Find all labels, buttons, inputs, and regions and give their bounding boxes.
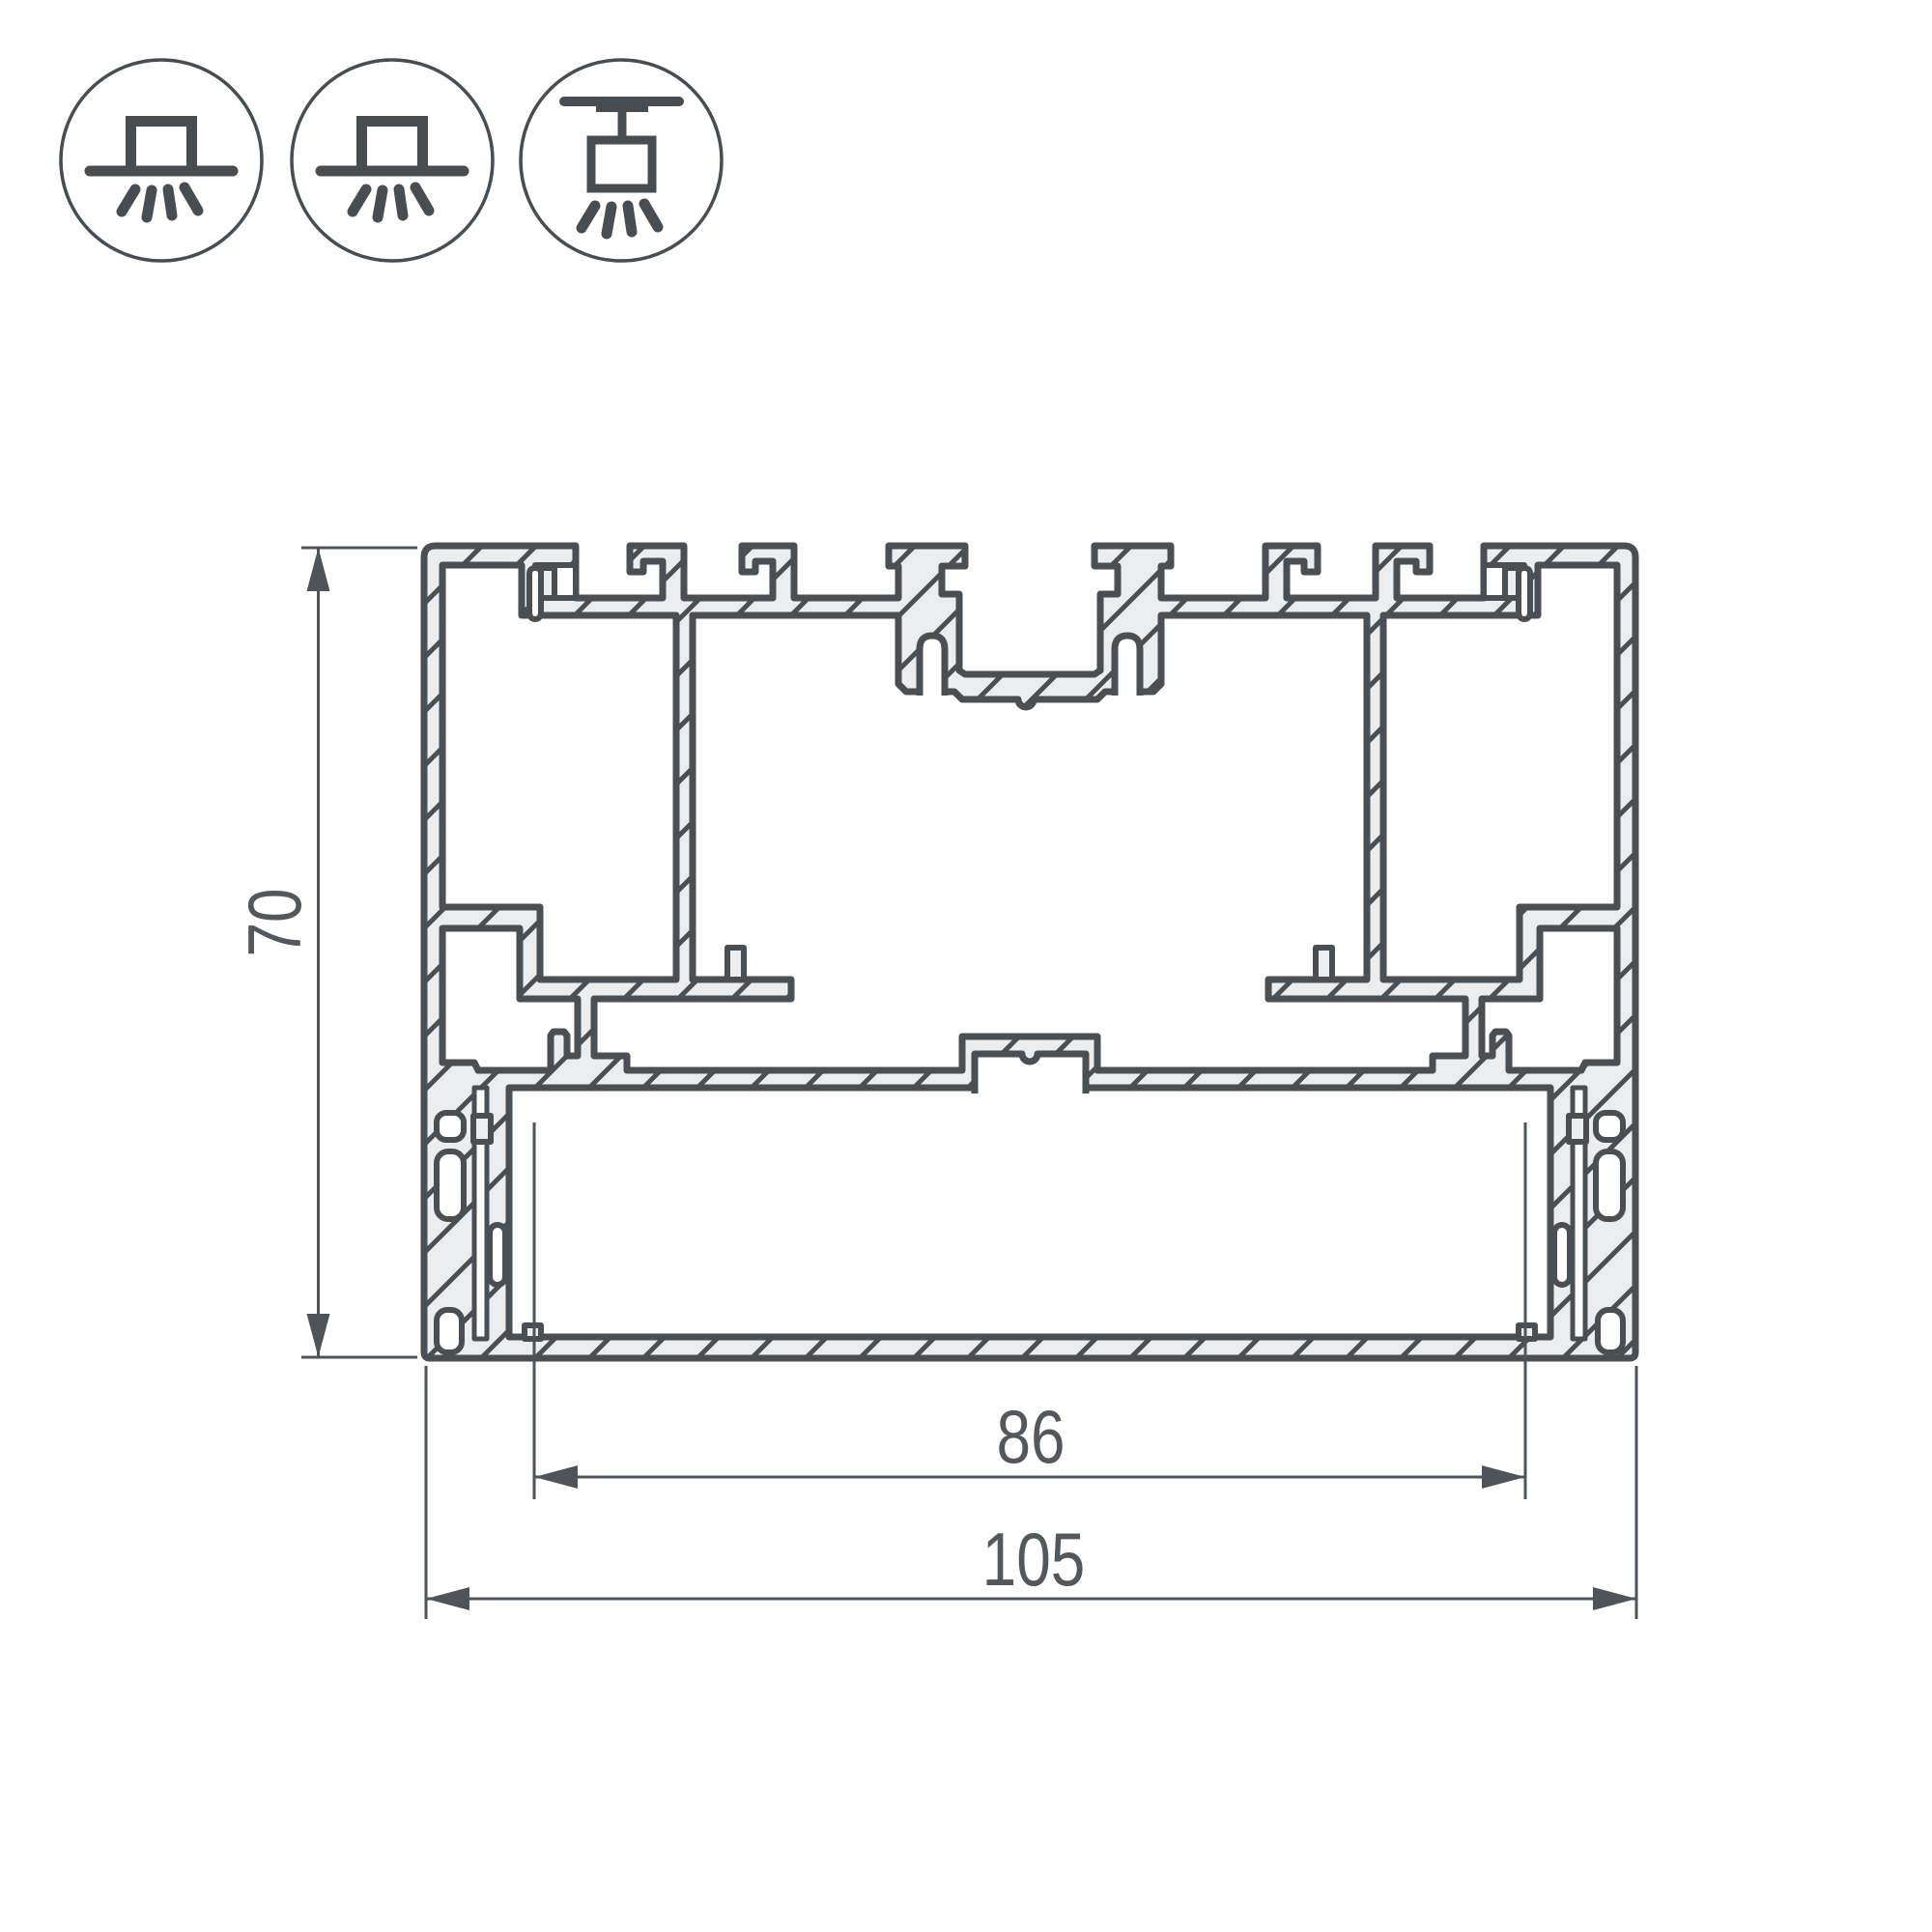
svg-text:105: 105 <box>982 1518 1086 1602</box>
svg-text:70: 70 <box>233 888 317 956</box>
svg-text:86: 86 <box>996 1395 1065 1479</box>
